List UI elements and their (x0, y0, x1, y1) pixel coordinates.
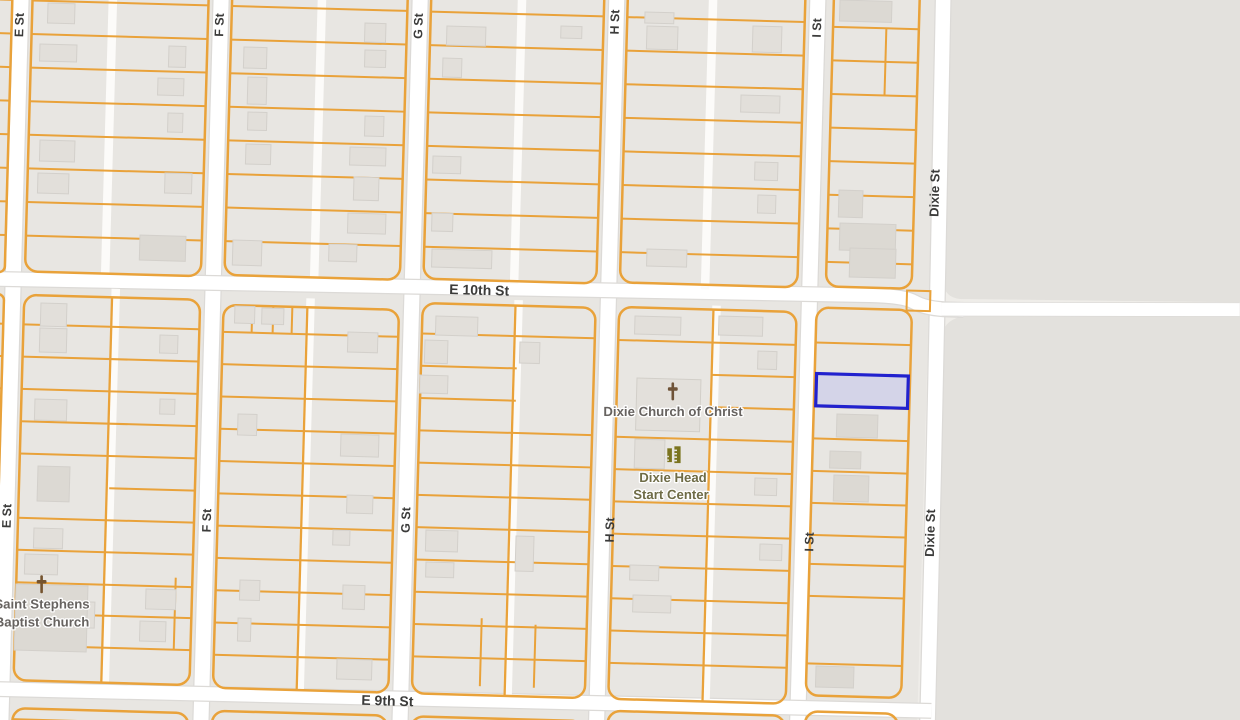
svg-text:H St: H St (603, 516, 618, 542)
svg-text:F St: F St (212, 12, 227, 37)
svg-text:E St: E St (12, 12, 27, 38)
svg-text:E St: E St (0, 503, 14, 529)
svg-text:E 10th St: E 10th St (449, 281, 510, 299)
svg-text:E 9th St: E 9th St (361, 692, 414, 709)
svg-text:F St: F St (200, 508, 215, 533)
svg-text:Dixie Head: Dixie Head (639, 470, 706, 485)
svg-text:I St: I St (810, 17, 825, 38)
svg-text:Start Center: Start Center (633, 487, 708, 502)
svg-text:Dixie St: Dixie St (926, 168, 942, 217)
svg-text:G St: G St (411, 12, 426, 39)
svg-text:Saint Stephens: Saint Stephens (0, 596, 90, 611)
svg-text:G St: G St (399, 506, 414, 533)
svg-text:H St: H St (608, 9, 623, 35)
svg-text:Baptist Church: Baptist Church (0, 614, 89, 629)
svg-text:I St: I St (802, 531, 817, 552)
svg-text:Dixie Church of Christ: Dixie Church of Christ (603, 404, 743, 419)
svg-text:Dixie St: Dixie St (922, 508, 938, 557)
